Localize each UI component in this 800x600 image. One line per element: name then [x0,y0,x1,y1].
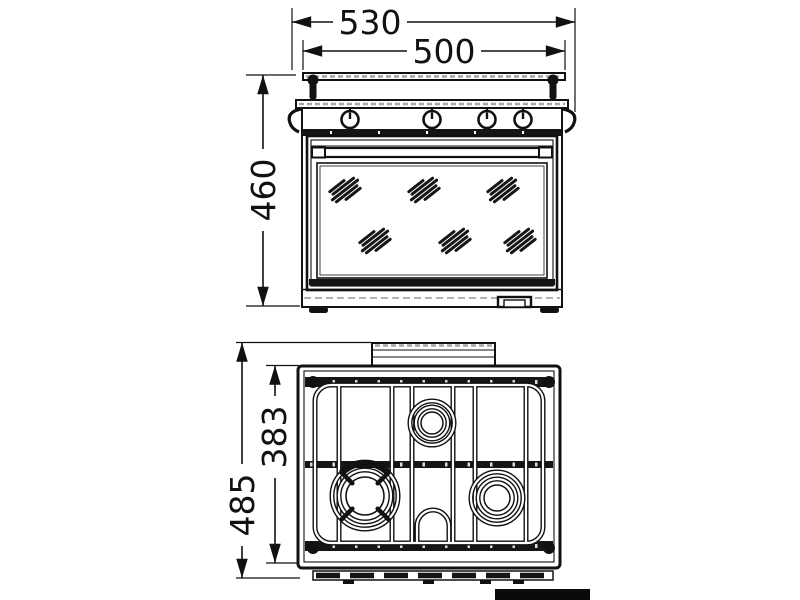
grid-rail-middle [305,461,553,468]
foot-right [540,307,559,313]
corner-bolt [307,542,319,554]
flue-bracket [372,343,495,366]
dim-label-383: 383 [255,406,294,469]
pot-clamp-right [548,75,559,100]
oven-door [307,136,557,290]
pot-clamp-left [308,75,319,100]
side-hook-right [563,109,575,132]
top-view: 485 383 [223,343,560,585]
cropped-black-bar [495,589,590,600]
dimension-460: 460 [244,75,300,306]
stove-dimensional-drawing: 530 500 460 [0,0,800,600]
dim-label-460: 460 [244,159,283,222]
dim-label-530: 530 [339,3,402,42]
front-view: 530 500 460 [244,3,575,313]
foot-left [309,307,328,313]
side-hook-left [289,109,301,132]
base-latch [498,297,531,307]
cooktop-edge [296,100,568,108]
door-handle [312,148,552,158]
sea-rail [303,73,565,80]
corner-bolt [307,376,319,388]
dim-label-485: 485 [223,474,262,537]
mounting-strip [313,571,553,584]
corner-bolt [543,542,555,554]
technical-drawing-page: 530 500 460 [0,0,800,600]
door-glass [317,163,547,278]
dim-label-500: 500 [413,32,476,71]
door-bottom-strip [309,279,555,286]
corner-bolt [543,376,555,388]
